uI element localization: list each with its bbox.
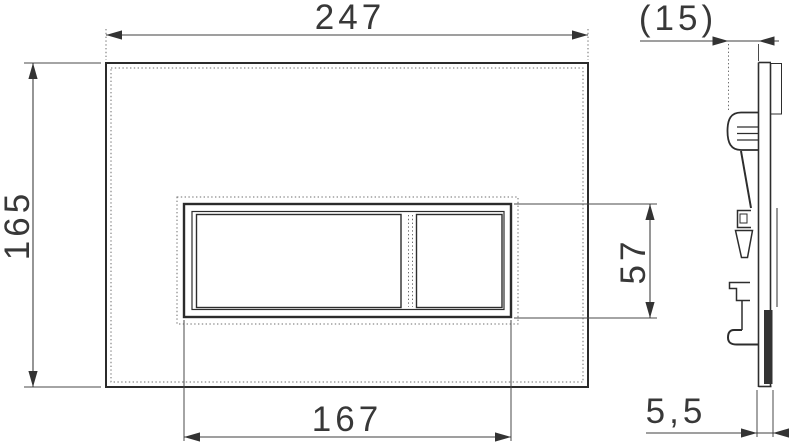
dimension-button-area-width: 167 <box>184 320 511 442</box>
dimension-overall-width: 247 <box>106 0 588 60</box>
arrowhead-icon <box>645 204 654 220</box>
technical-drawing-page: 247 165 167 57 (15) <box>0 0 789 444</box>
arrowhead-icon <box>28 63 37 79</box>
arrowhead-icon <box>106 30 122 39</box>
side-top-bracket <box>771 64 782 115</box>
dim-label-overall-height: 165 <box>0 190 37 260</box>
arrowhead-icon <box>28 371 37 387</box>
retainer-wedge <box>736 231 753 258</box>
front-view <box>106 63 588 387</box>
lower-step-clip <box>730 283 751 301</box>
hidden-opening-outline <box>177 197 518 324</box>
arrowhead-icon <box>773 428 789 437</box>
button-frame-outer <box>184 204 511 317</box>
plate-outline <box>106 63 588 387</box>
small-flush-button <box>417 215 503 308</box>
dim-label-button-area-width: 167 <box>312 400 382 439</box>
dim-label-button-area-height: 57 <box>614 238 653 285</box>
arrowhead-icon <box>759 36 775 45</box>
dim-label-side-depth: (15) <box>639 0 717 38</box>
flush-plate-technical-drawing: 247 165 167 57 (15) <box>0 0 789 444</box>
bottom-hook-clip <box>728 330 758 345</box>
dimension-button-area-height: 57 <box>514 204 657 318</box>
side-lower-block <box>764 310 773 384</box>
side-view <box>728 63 782 388</box>
mounting-spring-clip <box>728 113 759 151</box>
arrowhead-icon <box>572 30 588 39</box>
button-frame-inner <box>192 212 504 310</box>
clip-lever-arm <box>741 151 751 208</box>
arrowhead-icon <box>184 432 200 441</box>
dim-label-plate-thickness: 5,5 <box>646 392 707 431</box>
arrowhead-icon <box>495 432 511 441</box>
plate-inner-contour <box>111 68 583 382</box>
large-flush-button <box>197 215 402 308</box>
dimension-overall-height: 165 <box>0 63 101 387</box>
middle-retainer-notch <box>740 214 747 223</box>
dim-label-overall-width: 247 <box>315 0 385 37</box>
arrowhead-icon <box>645 302 654 318</box>
dimension-plate-thickness: 5,5 <box>646 390 789 438</box>
arrowhead-icon <box>741 428 757 437</box>
